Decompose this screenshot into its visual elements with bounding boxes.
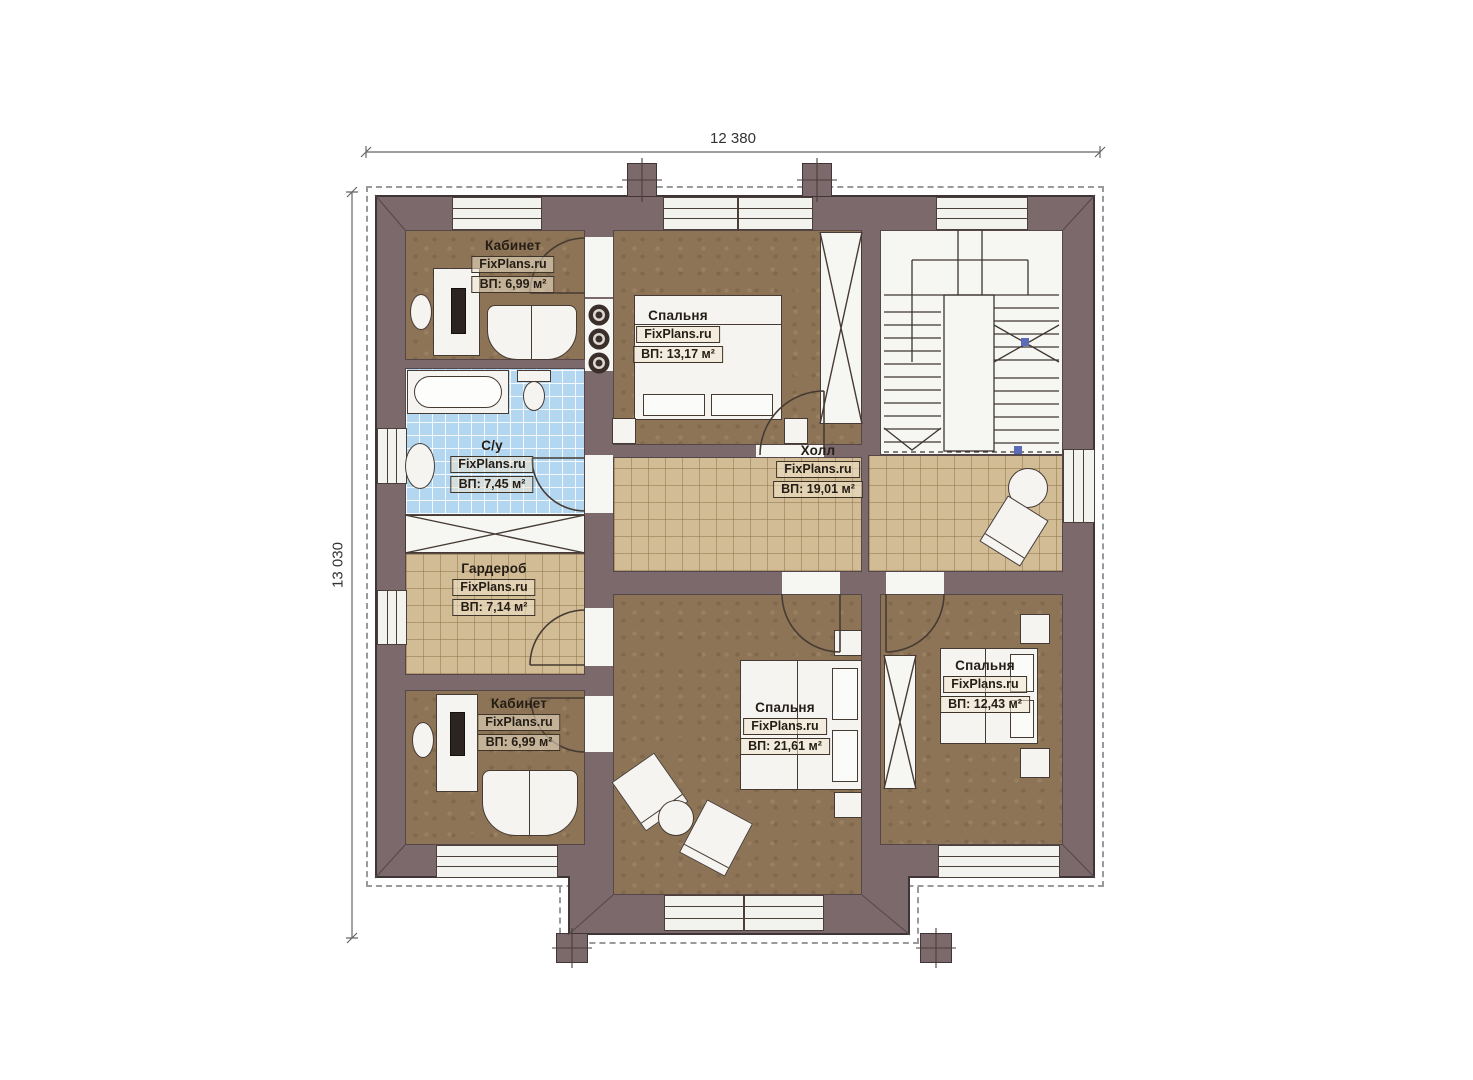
room-area: ВП: 19,01 м² — [773, 481, 863, 498]
pilaster-bottom-left — [556, 933, 588, 963]
window-right-hall — [1063, 449, 1095, 523]
room-label-bedroom-right: Спальня FixPlans.ru ВП: 12,43 м² — [940, 658, 1030, 713]
door-gap-office-top — [585, 237, 613, 297]
pilaster-bottom-right — [920, 933, 952, 963]
nightstand — [612, 418, 636, 444]
room-name: Кабинет — [477, 696, 560, 711]
room-area: ВП: 6,99 м² — [472, 276, 555, 293]
nightstand — [834, 630, 862, 656]
watermark: FixPlans.ru — [477, 714, 560, 731]
room-name: Кабинет — [471, 238, 554, 253]
pillow — [643, 394, 705, 416]
chair-office-top — [410, 294, 432, 330]
closet-block — [405, 515, 585, 553]
watermark: FixPlans.ru — [452, 579, 535, 596]
sofa-office-bottom — [482, 770, 578, 836]
room-area: ВП: 13,17 м² — [633, 346, 723, 363]
pillow — [832, 730, 858, 782]
wardrobe-cabinet-bedroom-top — [820, 232, 862, 424]
room-area: ВП: 12,43 м² — [940, 696, 1030, 713]
flue-block — [585, 299, 613, 371]
room-name: Спальня — [940, 658, 1030, 673]
stairwell-floor — [880, 230, 1063, 455]
monitor-office-top — [451, 288, 466, 334]
room-label-bedroom-top: Спальня FixPlans.ru ВП: 13,17 м² — [633, 308, 723, 363]
door-gap-office-bottom — [585, 696, 613, 752]
nightstand — [784, 418, 808, 444]
room-area: ВП: 7,45 м² — [451, 476, 534, 493]
window-left-bathroom — [377, 428, 407, 484]
side-table — [658, 800, 694, 836]
sofa-office-top — [487, 305, 577, 360]
wardrobe-cabinet-bedroom-right — [884, 655, 916, 789]
window-bottom-bedroom-right — [938, 845, 1060, 878]
washbasin — [405, 443, 435, 489]
room-name: Холл — [773, 443, 863, 458]
door-gap-bedroom-right — [886, 572, 944, 594]
window-left-wardrobe — [377, 590, 407, 645]
door-gap-wardrobe — [585, 608, 613, 666]
room-label-office-top: Кабинет FixPlans.ru ВП: 6,99 м² — [471, 238, 554, 293]
watermark: FixPlans.ru — [743, 718, 826, 735]
room-name: Спальня — [633, 308, 723, 323]
room-label-hall: Холл FixPlans.ru ВП: 19,01 м² — [773, 443, 863, 498]
window-top-bedroom — [663, 197, 813, 230]
window-bottom-office — [436, 845, 558, 878]
watermark: FixPlans.ru — [471, 256, 554, 273]
room-label-bathroom: С/у FixPlans.ru ВП: 7,45 м² — [450, 438, 533, 493]
room-name: Спальня — [740, 700, 830, 715]
window-top-office — [452, 197, 542, 230]
watermark: FixPlans.ru — [450, 456, 533, 473]
dimension-width-label: 12 380 — [710, 130, 756, 147]
door-gap-bathroom — [585, 455, 613, 513]
room-area: ВП: 6,99 м² — [478, 734, 561, 751]
watermark: FixPlans.ru — [776, 461, 859, 478]
toilet-bowl — [523, 381, 545, 411]
room-label-office-bottom: Кабинет FixPlans.ru ВП: 6,99 м² — [477, 696, 560, 751]
floor-plan-canvas: 12 380 13 030 — [0, 0, 1473, 1080]
chair-office-bottom — [412, 722, 434, 758]
bathtub — [407, 370, 509, 414]
room-label-wardrobe: Гардероб FixPlans.ru ВП: 7,14 м² — [452, 561, 535, 616]
room-area: ВП: 21,61 м² — [740, 738, 830, 755]
watermark: FixPlans.ru — [636, 326, 719, 343]
room-area: ВП: 7,14 м² — [453, 599, 536, 616]
pillow — [711, 394, 773, 416]
pillow — [832, 668, 858, 720]
window-top-stair — [936, 197, 1028, 230]
monitor-office-bottom — [450, 712, 465, 756]
pilaster-top-right — [802, 163, 832, 197]
room-name: Гардероб — [452, 561, 535, 576]
nightstand — [834, 792, 862, 818]
watermark: FixPlans.ru — [943, 676, 1026, 693]
dimension-height-label: 13 030 — [330, 542, 347, 588]
bathtub-basin — [414, 376, 502, 408]
nightstand — [1020, 614, 1050, 644]
room-label-bedroom-main: Спальня FixPlans.ru ВП: 21,61 м² — [740, 700, 830, 755]
door-gap-bedroom-main — [782, 572, 840, 594]
nightstand — [1020, 748, 1050, 778]
room-name: С/у — [450, 438, 533, 453]
window-bay-bedroom — [664, 895, 824, 931]
pilaster-top-left — [627, 163, 657, 197]
